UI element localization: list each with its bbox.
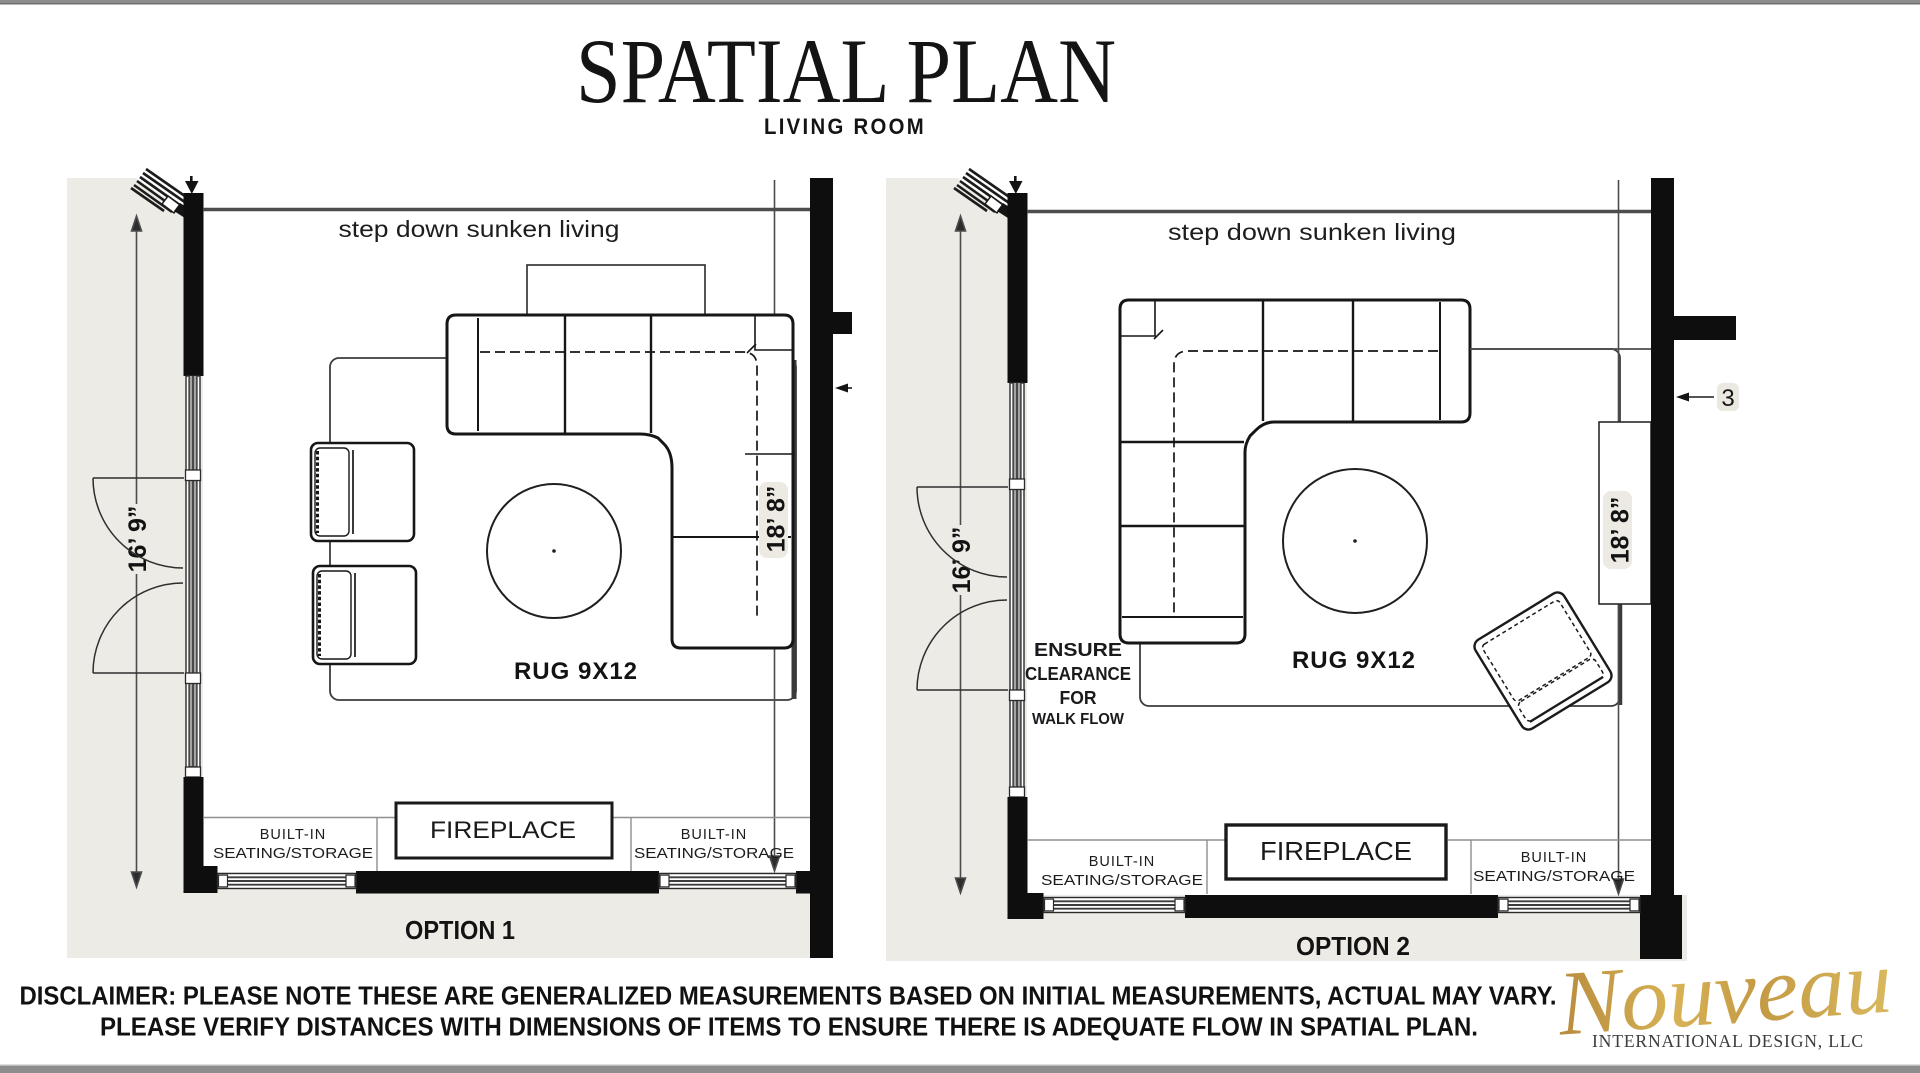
- svg-text:LIVING ROOM: LIVING ROOM: [764, 114, 926, 139]
- svg-text:CLEARANCE: CLEARANCE: [1025, 664, 1131, 684]
- svg-text:RUG 9X12: RUG 9X12: [1292, 647, 1416, 674]
- svg-text:16’ 9”: 16’ 9”: [124, 506, 152, 573]
- svg-text:DISCLAIMER: PLEASE NOTE THESE: DISCLAIMER: PLEASE NOTE THESE ARE GENERA…: [20, 981, 1557, 1011]
- svg-text:SEATING/STORAGE: SEATING/STORAGE: [213, 846, 373, 862]
- svg-text:SEATING/STORAGE: SEATING/STORAGE: [634, 846, 794, 862]
- svg-text:SEATING/STORAGE: SEATING/STORAGE: [1473, 869, 1635, 885]
- svg-text:step down sunken living: step down sunken living: [339, 216, 620, 242]
- svg-text:3: 3: [1721, 385, 1734, 412]
- svg-text:FIREPLACE: FIREPLACE: [430, 817, 576, 844]
- svg-text:step down sunken living: step down sunken living: [1168, 219, 1456, 245]
- svg-text:SPATIAL PLAN: SPATIAL PLAN: [576, 20, 1116, 122]
- svg-text:BUILT-IN: BUILT-IN: [260, 827, 327, 843]
- svg-text:16’ 9”: 16’ 9”: [948, 527, 976, 594]
- svg-text:WALK FLOW: WALK FLOW: [1032, 711, 1124, 728]
- svg-text:FOR: FOR: [1060, 688, 1097, 708]
- svg-text:18’ 8”: 18’ 8”: [763, 486, 791, 553]
- svg-text:BUILT-IN: BUILT-IN: [1521, 850, 1588, 866]
- svg-text:ENSURE: ENSURE: [1034, 640, 1122, 660]
- svg-text:FIREPLACE: FIREPLACE: [1260, 836, 1412, 866]
- svg-text:BUILT-IN: BUILT-IN: [1089, 854, 1156, 870]
- svg-text:SEATING/STORAGE: SEATING/STORAGE: [1041, 873, 1203, 889]
- svg-text:BUILT-IN: BUILT-IN: [681, 827, 748, 843]
- svg-text:RUG 9X12: RUG 9X12: [514, 658, 638, 685]
- svg-text:OPTION 1: OPTION 1: [405, 915, 515, 945]
- svg-text:OPTION 2: OPTION 2: [1296, 931, 1410, 961]
- svg-text:INTERNATIONAL DESIGN, LLC: INTERNATIONAL DESIGN, LLC: [1592, 1031, 1864, 1051]
- svg-text:18’ 8”: 18’ 8”: [1607, 497, 1635, 564]
- svg-text:PLEASE VERIFY DISTANCES WITH D: PLEASE VERIFY DISTANCES WITH DIMENSIONS …: [100, 1012, 1478, 1042]
